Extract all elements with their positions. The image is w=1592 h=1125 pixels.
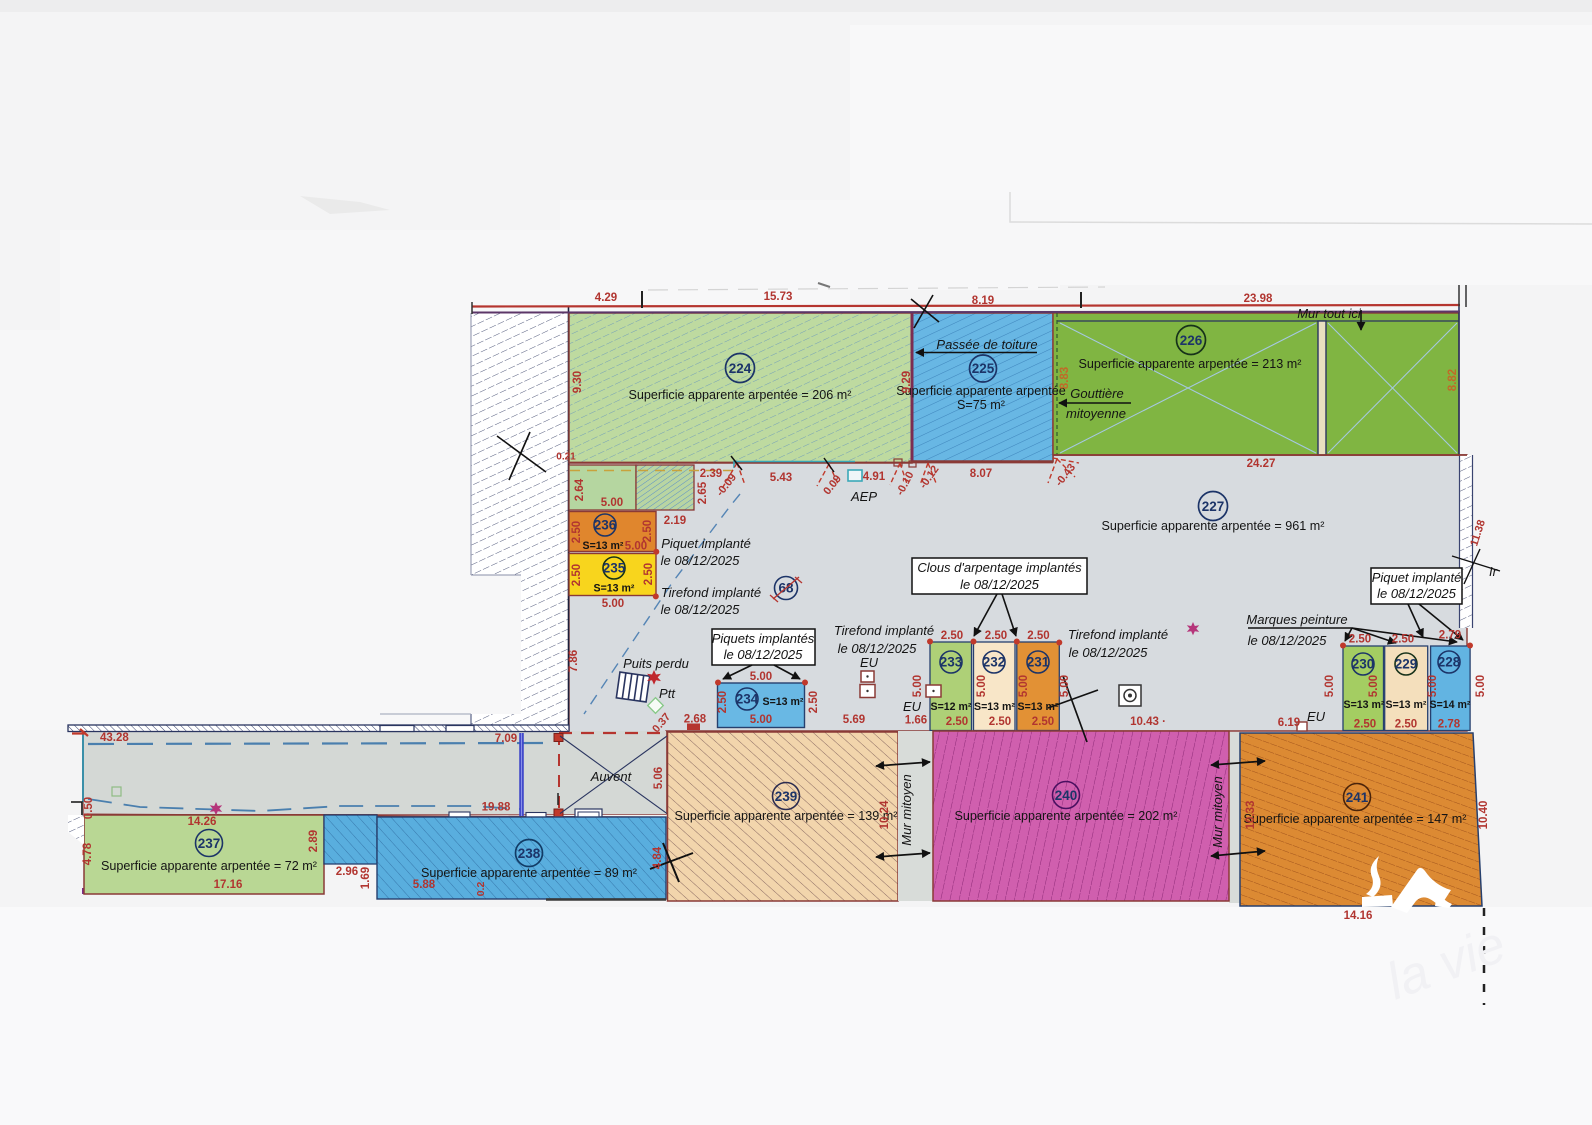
svg-text:le 08/12/2025: le 08/12/2025: [661, 602, 741, 617]
svg-text:2.50: 2.50: [1354, 719, 1376, 731]
svg-text:Superficie apparente arpentée: Superficie apparente arpentée: [896, 384, 1065, 398]
svg-text:2.50: 2.50: [1349, 634, 1371, 646]
svg-text:224: 224: [729, 361, 752, 376]
svg-text:le 08/12/2025: le 08/12/2025: [960, 577, 1040, 592]
svg-text:le 08/12/2025: le 08/12/2025: [1069, 645, 1149, 660]
svg-text:10.40: 10.40: [1478, 801, 1490, 830]
svg-text:8.07: 8.07: [970, 468, 992, 480]
svg-text:6.19: 6.19: [1278, 717, 1300, 729]
svg-text:230: 230: [1352, 657, 1375, 672]
svg-text:241: 241: [1346, 790, 1369, 805]
svg-text:2.65: 2.65: [697, 481, 709, 504]
svg-text:8.83: 8.83: [1059, 367, 1071, 389]
svg-text:0.21: 0.21: [556, 452, 576, 463]
svg-text:EU: EU: [903, 699, 922, 714]
svg-text:2.50: 2.50: [808, 691, 820, 713]
svg-text:240: 240: [1055, 788, 1078, 803]
svg-text:238: 238: [518, 846, 541, 861]
svg-text:8.82: 8.82: [1447, 369, 1459, 391]
svg-text:le 08/12/2025: le 08/12/2025: [661, 553, 741, 568]
svg-text:5.00: 5.00: [750, 671, 772, 683]
svg-text:Passée de toiture: Passée de toiture: [936, 337, 1037, 352]
svg-text:2.19: 2.19: [664, 515, 686, 527]
svg-text:Gouttière: Gouttière: [1070, 386, 1123, 401]
svg-text:Piquets implantés: Piquets implantés: [712, 631, 815, 646]
svg-text:5.00: 5.00: [1368, 675, 1380, 697]
svg-text:2.50: 2.50: [1032, 716, 1054, 728]
svg-text:15.73: 15.73: [764, 291, 793, 303]
svg-text:2.50: 2.50: [1395, 719, 1417, 731]
svg-text:2.50: 2.50: [1392, 634, 1414, 646]
svg-text:2.68: 2.68: [684, 714, 707, 726]
svg-text:2.50: 2.50: [571, 564, 583, 586]
svg-text:Piquet implanté: Piquet implanté: [1372, 570, 1462, 585]
svg-text:Ir: Ir: [1489, 564, 1498, 579]
svg-text:5.00: 5.00: [601, 497, 623, 509]
svg-text:5.00: 5.00: [602, 598, 624, 610]
svg-text:7.86: 7.86: [568, 650, 580, 672]
svg-text:5.00: 5.00: [1475, 675, 1487, 697]
svg-text:5.00: 5.00: [1018, 675, 1030, 697]
svg-text:S=12 m²: S=12 m²: [931, 701, 972, 713]
svg-text:S=14 m²: S=14 m²: [1430, 699, 1471, 711]
svg-text:5.06: 5.06: [653, 767, 665, 789]
svg-text:231: 231: [1027, 655, 1050, 670]
svg-text:S=13 m²: S=13 m²: [594, 583, 635, 595]
svg-text:Mur mitoyen: Mur mitoyen: [1210, 776, 1225, 848]
svg-text:le 08/12/2025: le 08/12/2025: [1248, 633, 1328, 648]
svg-text:Superficie apparente arpentée: Superficie apparente arpentée = 206 m²: [629, 388, 852, 402]
svg-text:1.66: 1.66: [905, 715, 927, 727]
svg-text:S=13 m²: S=13 m²: [1386, 699, 1427, 711]
svg-text:0.50: 0.50: [83, 797, 95, 819]
svg-text:Superficie apparente arpentée: Superficie apparente arpentée = 89 m²: [421, 866, 637, 880]
svg-text:234: 234: [736, 692, 759, 707]
svg-text:le 08/12/2025: le 08/12/2025: [838, 641, 918, 656]
svg-text:8.19: 8.19: [972, 295, 994, 307]
svg-text:Mur tout ici: Mur tout ici: [1297, 306, 1362, 321]
svg-text:5.43: 5.43: [770, 472, 792, 484]
svg-text:2.50: 2.50: [946, 716, 968, 728]
svg-text:23.98: 23.98: [1244, 293, 1273, 305]
svg-text:17.16: 17.16: [214, 879, 243, 891]
svg-text:5.88: 5.88: [413, 879, 436, 891]
svg-text:5.00: 5.00: [976, 675, 988, 697]
svg-text:EU: EU: [860, 655, 879, 670]
svg-text:9.29: 9.29: [901, 371, 913, 393]
svg-text:2.50: 2.50: [717, 691, 729, 713]
svg-text:24.27: 24.27: [1247, 458, 1276, 470]
svg-text:5.69: 5.69: [843, 714, 865, 726]
svg-text:Superficie apparente arpentée: Superficie apparente arpentée = 961 m²: [1102, 519, 1325, 533]
svg-text:19.88: 19.88: [482, 802, 511, 814]
svg-text:4.91: 4.91: [863, 471, 886, 483]
svg-text:Superficie apparente arpentée: Superficie apparente arpentée = 202 m²: [955, 809, 1178, 823]
svg-text:Tirefond implanté: Tirefond implanté: [834, 623, 934, 638]
svg-text:Tirefond implanté: Tirefond implanté: [661, 585, 761, 600]
svg-text:228: 228: [1438, 655, 1461, 670]
svg-text:4.78: 4.78: [82, 842, 94, 865]
svg-text:2.50: 2.50: [989, 716, 1011, 728]
svg-text:S=13 m²: S=13 m²: [763, 696, 804, 708]
svg-text:236: 236: [594, 518, 617, 533]
svg-text:Marques peinture: Marques peinture: [1246, 612, 1347, 627]
svg-text:7.09: 7.09: [495, 733, 517, 745]
svg-text:Auvent: Auvent: [590, 769, 633, 784]
svg-text:227: 227: [1202, 499, 1225, 514]
svg-text:5.00: 5.00: [1059, 675, 1071, 697]
svg-text:233: 233: [940, 655, 963, 670]
svg-text:Superficie apparente arpentée: Superficie apparente arpentée = 213 m²: [1079, 357, 1302, 371]
svg-text:2.78: 2.78: [1438, 719, 1461, 731]
svg-text:1.69: 1.69: [360, 867, 372, 889]
svg-text:10.43 ·: 10.43 ·: [1130, 716, 1166, 728]
svg-text:10.24: 10.24: [879, 800, 891, 829]
svg-text:232: 232: [983, 655, 1006, 670]
svg-text:239: 239: [775, 789, 798, 804]
svg-text:2.50: 2.50: [1027, 630, 1049, 642]
svg-text:S=13 m²: S=13 m²: [583, 540, 624, 552]
svg-text:2.50: 2.50: [985, 630, 1007, 642]
svg-text:2.50: 2.50: [642, 520, 654, 542]
svg-text:229: 229: [1395, 657, 1418, 672]
svg-text:4.29: 4.29: [595, 292, 617, 304]
svg-text:S=13 m²: S=13 m²: [1344, 699, 1385, 711]
svg-text:10.33: 10.33: [1245, 801, 1257, 830]
svg-text:237: 237: [198, 836, 221, 851]
svg-text:14.26: 14.26: [188, 816, 217, 828]
svg-text:2.50: 2.50: [571, 521, 583, 543]
svg-text:9.30: 9.30: [572, 371, 584, 393]
svg-text:Tirefond implanté: Tirefond implanté: [1068, 627, 1168, 642]
svg-text:2.39: 2.39: [700, 468, 722, 480]
svg-text:Superficie apparente arpentée: Superficie apparente arpentée = 147 m²: [1244, 812, 1467, 826]
svg-text:Mur mitoyen: Mur mitoyen: [899, 774, 914, 846]
svg-text:le 08/12/2025: le 08/12/2025: [724, 647, 804, 662]
svg-text:S=13 m²: S=13 m²: [974, 701, 1015, 713]
svg-text:S=75 m²: S=75 m²: [957, 398, 1005, 412]
svg-text:Clous d'arpentage implantés: Clous d'arpentage implantés: [917, 560, 1082, 575]
svg-text:2.64: 2.64: [574, 478, 586, 501]
svg-text:225: 225: [972, 361, 995, 376]
svg-text:2.50: 2.50: [643, 563, 655, 585]
svg-text:2.50: 2.50: [941, 630, 963, 642]
svg-text:Piquet implanté: Piquet implanté: [661, 536, 751, 551]
svg-text:S=13 m²: S=13 m²: [1018, 701, 1059, 713]
svg-text:5.00: 5.00: [1324, 675, 1336, 697]
svg-text:43.28: 43.28: [100, 732, 129, 744]
svg-text:mitoyenne: mitoyenne: [1066, 406, 1126, 421]
svg-text:226: 226: [1180, 333, 1203, 348]
svg-text:2.96: 2.96: [336, 866, 358, 878]
svg-text:Puits perdu: Puits perdu: [623, 656, 689, 671]
svg-text:Superficie apparente arpentée: Superficie apparente arpentée = 139 m²: [675, 809, 898, 823]
svg-text:2.79: 2.79: [1439, 630, 1461, 642]
svg-text:4.84: 4.84: [652, 846, 664, 869]
svg-text:2.89: 2.89: [308, 830, 320, 852]
svg-text:235: 235: [603, 561, 626, 576]
svg-text:AEP: AEP: [850, 489, 877, 504]
svg-text:EU: EU: [1307, 709, 1326, 724]
svg-text:le 08/12/2025: le 08/12/2025: [1377, 586, 1457, 601]
svg-text:5.00: 5.00: [912, 675, 924, 697]
svg-text:5.00: 5.00: [750, 714, 772, 726]
svg-text:5.00: 5.00: [1427, 675, 1439, 697]
svg-text:Superficie apparente arpentée: Superficie apparente arpentée = 72 m²: [101, 859, 317, 873]
svg-text:Ptt: Ptt: [659, 686, 676, 701]
svg-text:14.16: 14.16: [1344, 910, 1373, 922]
svg-text:0.2: 0.2: [475, 882, 487, 897]
